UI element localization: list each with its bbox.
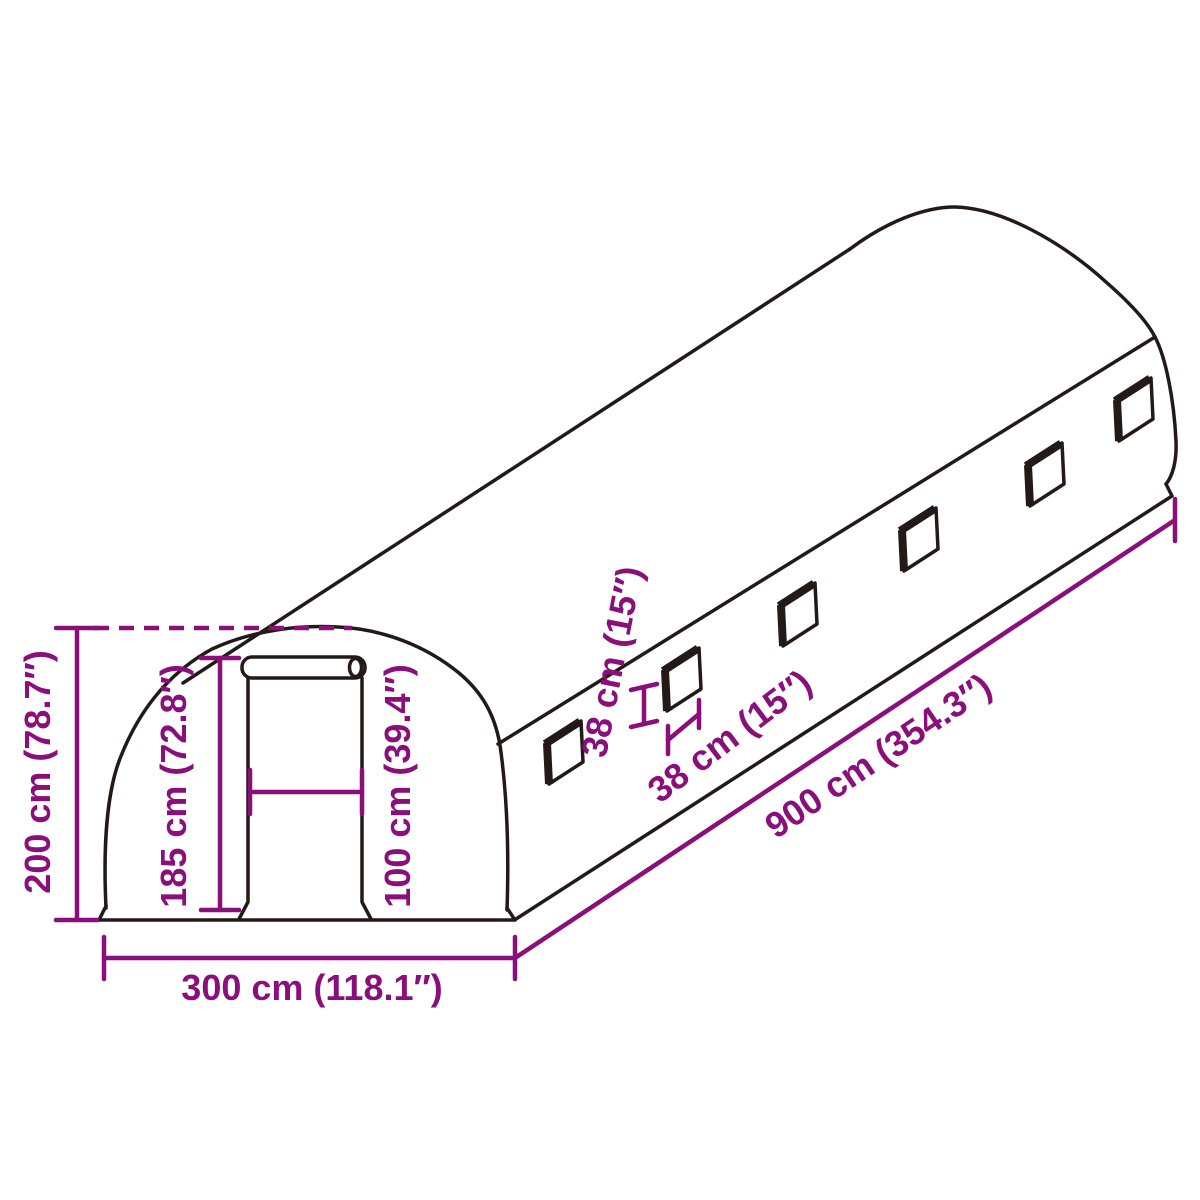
door-roll-bar — [242, 657, 365, 678]
door-roll-end-cap — [350, 659, 362, 677]
window-vent-6 — [1115, 378, 1153, 441]
greenhouse-outline — [99, 207, 1176, 920]
window-vent-3 — [779, 583, 817, 646]
greenhouse-dimension-diagram: 200 cm (78.7″) 185 cm (72.8″) 100 cm (39… — [0, 0, 1200, 1200]
dim-label-door-height: 185 cm (72.8″) — [153, 664, 194, 907]
window-vent-4 — [900, 508, 938, 571]
front-right-foot — [507, 908, 515, 920]
dim-label-window-height: 38 cm (15″) — [573, 563, 650, 761]
roof-left-silhouette — [183, 249, 850, 683]
rear-arch-outline — [850, 207, 1176, 484]
diagram-canvas: 200 cm (78.7″) 185 cm (72.8″) 100 cm (39… — [0, 0, 1200, 1200]
window-vent-5 — [1026, 443, 1064, 506]
dimension-labels: 200 cm (78.7″) 185 cm (72.8″) 100 cm (39… — [17, 563, 999, 1008]
dim-label-door-width: 100 cm (39.4″) — [377, 664, 418, 907]
dim-tick — [631, 721, 657, 727]
dim-label-total-width: 300 cm (118.1″) — [181, 967, 442, 1008]
dim-label-total-height: 200 cm (78.7″) — [17, 650, 58, 893]
door-left-jamb — [239, 678, 248, 919]
window-vent-2 — [663, 648, 701, 711]
dim-tick — [631, 684, 657, 690]
front-left-foot — [99, 906, 106, 920]
